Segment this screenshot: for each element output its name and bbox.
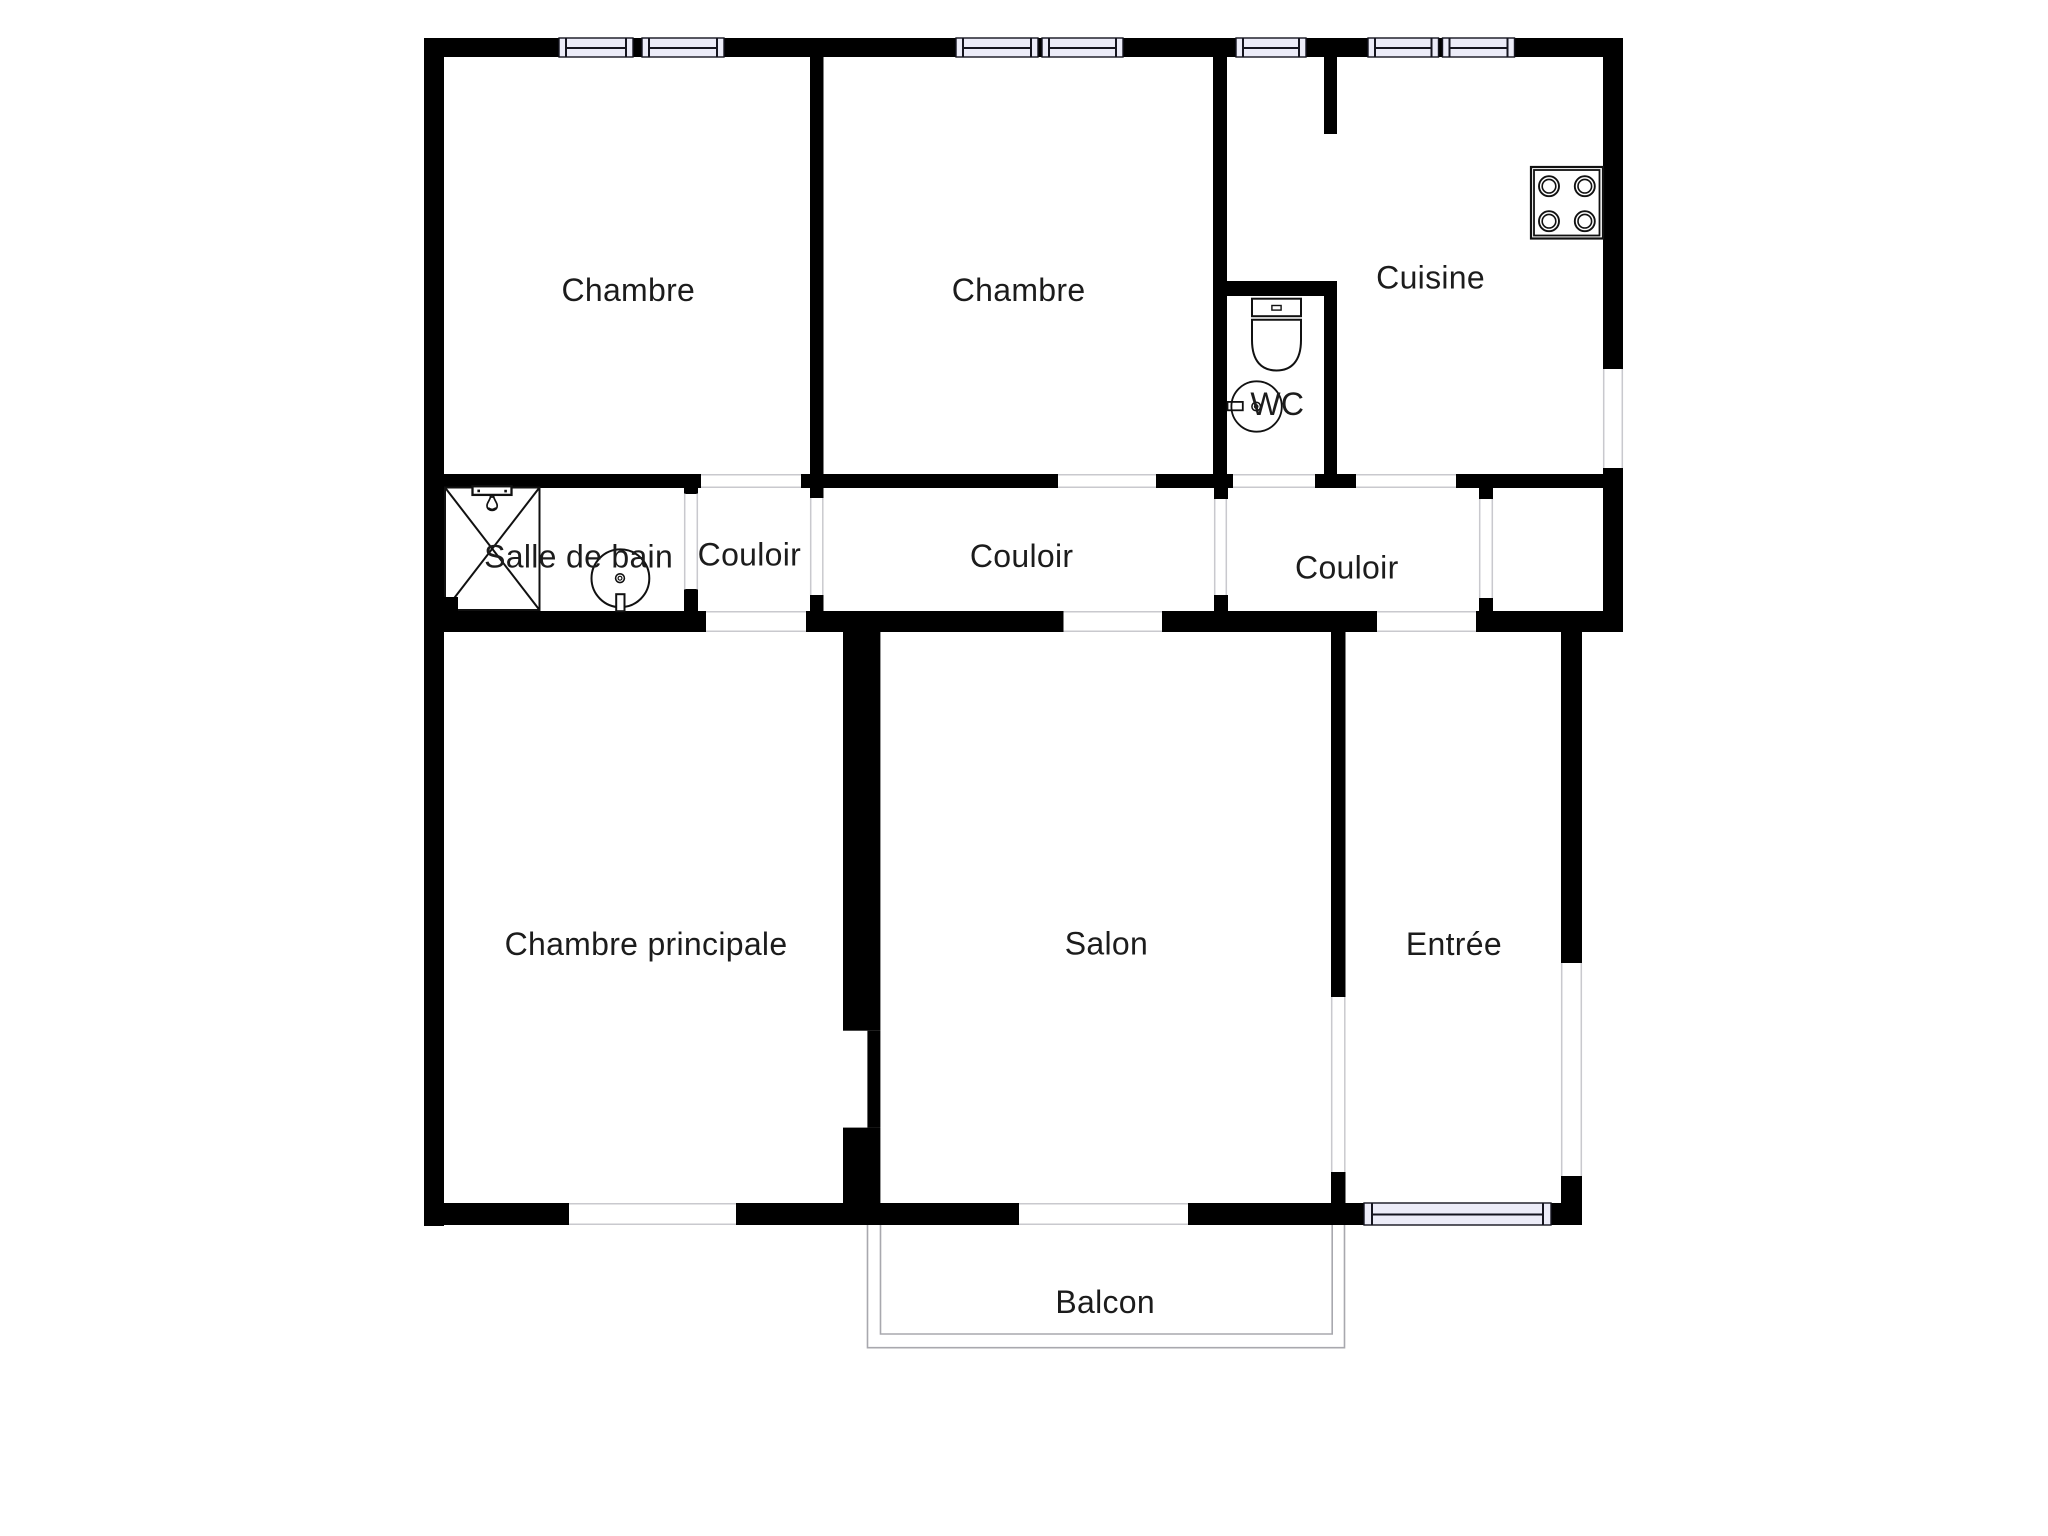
svg-text:Salle de bain: Salle de bain — [484, 538, 673, 574]
svg-text:Couloir: Couloir — [1295, 549, 1399, 585]
svg-text:Entrée: Entrée — [1406, 926, 1502, 962]
svg-text:Couloir: Couloir — [970, 538, 1074, 574]
svg-text:Chambre principale: Chambre principale — [505, 926, 788, 962]
svg-text:Chambre: Chambre — [952, 272, 1086, 308]
svg-text:Couloir: Couloir — [698, 537, 802, 573]
svg-text:Balcon: Balcon — [1055, 1284, 1155, 1320]
svg-text:WC: WC — [1250, 386, 1304, 422]
svg-text:Cuisine: Cuisine — [1376, 260, 1485, 296]
svg-text:Chambre: Chambre — [561, 272, 695, 308]
svg-text:Salon: Salon — [1065, 926, 1148, 962]
